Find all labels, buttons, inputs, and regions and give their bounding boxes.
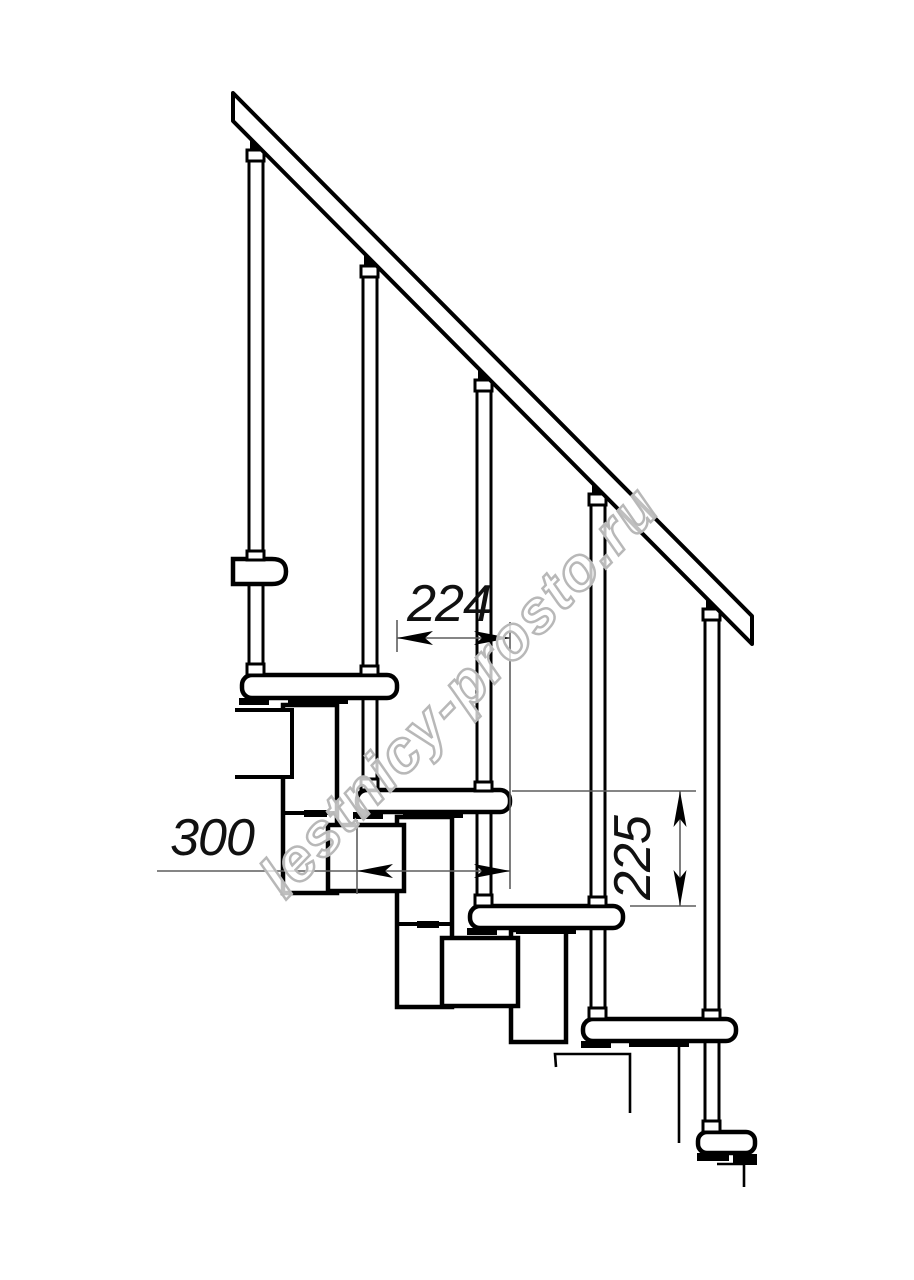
baluster-2-crossing-collar <box>361 666 378 675</box>
baluster-5-crossing-collar <box>703 1010 720 1019</box>
dim-225-label: 225 <box>604 814 662 901</box>
tread-2-plate <box>403 813 463 818</box>
baluster-4-mount-collar <box>589 1008 606 1019</box>
cut-line-floor <box>717 1164 744 1187</box>
support-module-1-cut <box>235 710 292 777</box>
tread-4 <box>583 1019 736 1041</box>
module-connector-2 <box>417 921 439 928</box>
baluster-1-mount-collar <box>247 664 264 675</box>
tread-1-plate <box>288 699 348 704</box>
tread-3-foot <box>467 928 497 935</box>
tread-3 <box>470 906 623 928</box>
dim-300-label: 300 <box>170 809 255 867</box>
baluster-3-crossing-collar <box>475 782 492 791</box>
tread-4-plate <box>629 1042 689 1047</box>
baluster-5-mount-collar <box>703 1121 720 1132</box>
support-module-3 <box>442 938 518 1006</box>
tread-1-foot <box>239 698 269 705</box>
tread-0-stub <box>233 559 286 584</box>
baluster-2-top-collar <box>361 266 378 277</box>
cut-line-module-4 <box>555 1054 630 1113</box>
tread-4-foot <box>581 1041 611 1048</box>
baluster-1 <box>249 150 263 675</box>
staircase-side-view-drawing: 224 300 225 lestnicy-prosto.ru <box>0 0 914 1280</box>
staircase-drawing-page: 224 300 225 lestnicy-prosto.ru <box>0 0 914 1280</box>
tread-1 <box>242 675 397 698</box>
baluster-2 <box>363 266 377 790</box>
baluster-3-mount-collar <box>475 895 492 906</box>
baluster-1-crossing-collar <box>247 551 264 560</box>
baluster-5 <box>705 609 719 1132</box>
floor-mount-block <box>733 1154 757 1165</box>
floor-mount-plate <box>698 1132 755 1153</box>
tread-3-plate <box>516 929 576 934</box>
floor-mount-foot <box>697 1153 729 1161</box>
